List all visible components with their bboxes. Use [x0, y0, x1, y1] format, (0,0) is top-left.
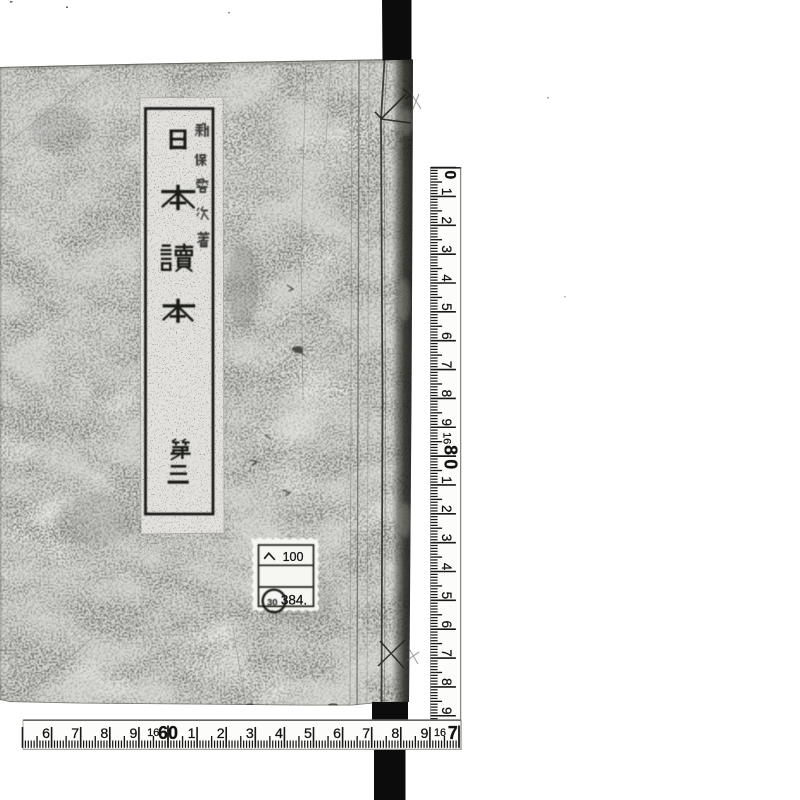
svg-text:3: 3	[439, 245, 454, 253]
svg-text:9: 9	[129, 726, 137, 742]
svg-text:8: 8	[439, 390, 454, 398]
svg-text:7: 7	[448, 723, 458, 743]
svg-text:8: 8	[439, 678, 454, 686]
svg-text:5: 5	[304, 726, 312, 742]
svg-text:9: 9	[439, 707, 454, 715]
svg-text:7: 7	[439, 649, 454, 657]
svg-text:1: 1	[188, 726, 196, 742]
svg-text:2: 2	[439, 505, 454, 513]
svg-text:6: 6	[42, 726, 50, 742]
svg-text:2: 2	[217, 726, 225, 742]
svg-text:4: 4	[439, 563, 454, 571]
svg-text:4: 4	[275, 726, 283, 742]
svg-text:5: 5	[439, 592, 454, 600]
svg-text:8: 8	[391, 726, 399, 742]
svg-text:8: 8	[440, 445, 460, 455]
svg-text:0: 0	[441, 170, 458, 179]
svg-text:30: 30	[267, 598, 278, 609]
svg-text:6: 6	[439, 620, 454, 628]
svg-text:8: 8	[100, 726, 108, 742]
svg-text:0: 0	[440, 459, 460, 469]
svg-text:60: 60	[158, 723, 178, 743]
svg-text:5: 5	[439, 303, 454, 311]
svg-text:7: 7	[439, 361, 454, 369]
svg-text:9: 9	[439, 418, 454, 426]
svg-text:6: 6	[439, 332, 454, 340]
svg-text:1: 1	[439, 476, 454, 484]
svg-text:1: 1	[439, 188, 454, 196]
svg-text:7: 7	[71, 726, 79, 742]
svg-text:7: 7	[362, 726, 370, 742]
svg-text:6: 6	[333, 726, 341, 742]
svg-text:9: 9	[420, 726, 428, 742]
svg-text:100: 100	[283, 550, 304, 564]
svg-text:4: 4	[439, 274, 454, 282]
svg-text:3: 3	[439, 534, 454, 542]
svg-text:16: 16	[434, 727, 446, 739]
svg-text:3: 3	[246, 726, 254, 742]
svg-text:2: 2	[439, 217, 454, 225]
svg-text:16: 16	[441, 432, 453, 444]
